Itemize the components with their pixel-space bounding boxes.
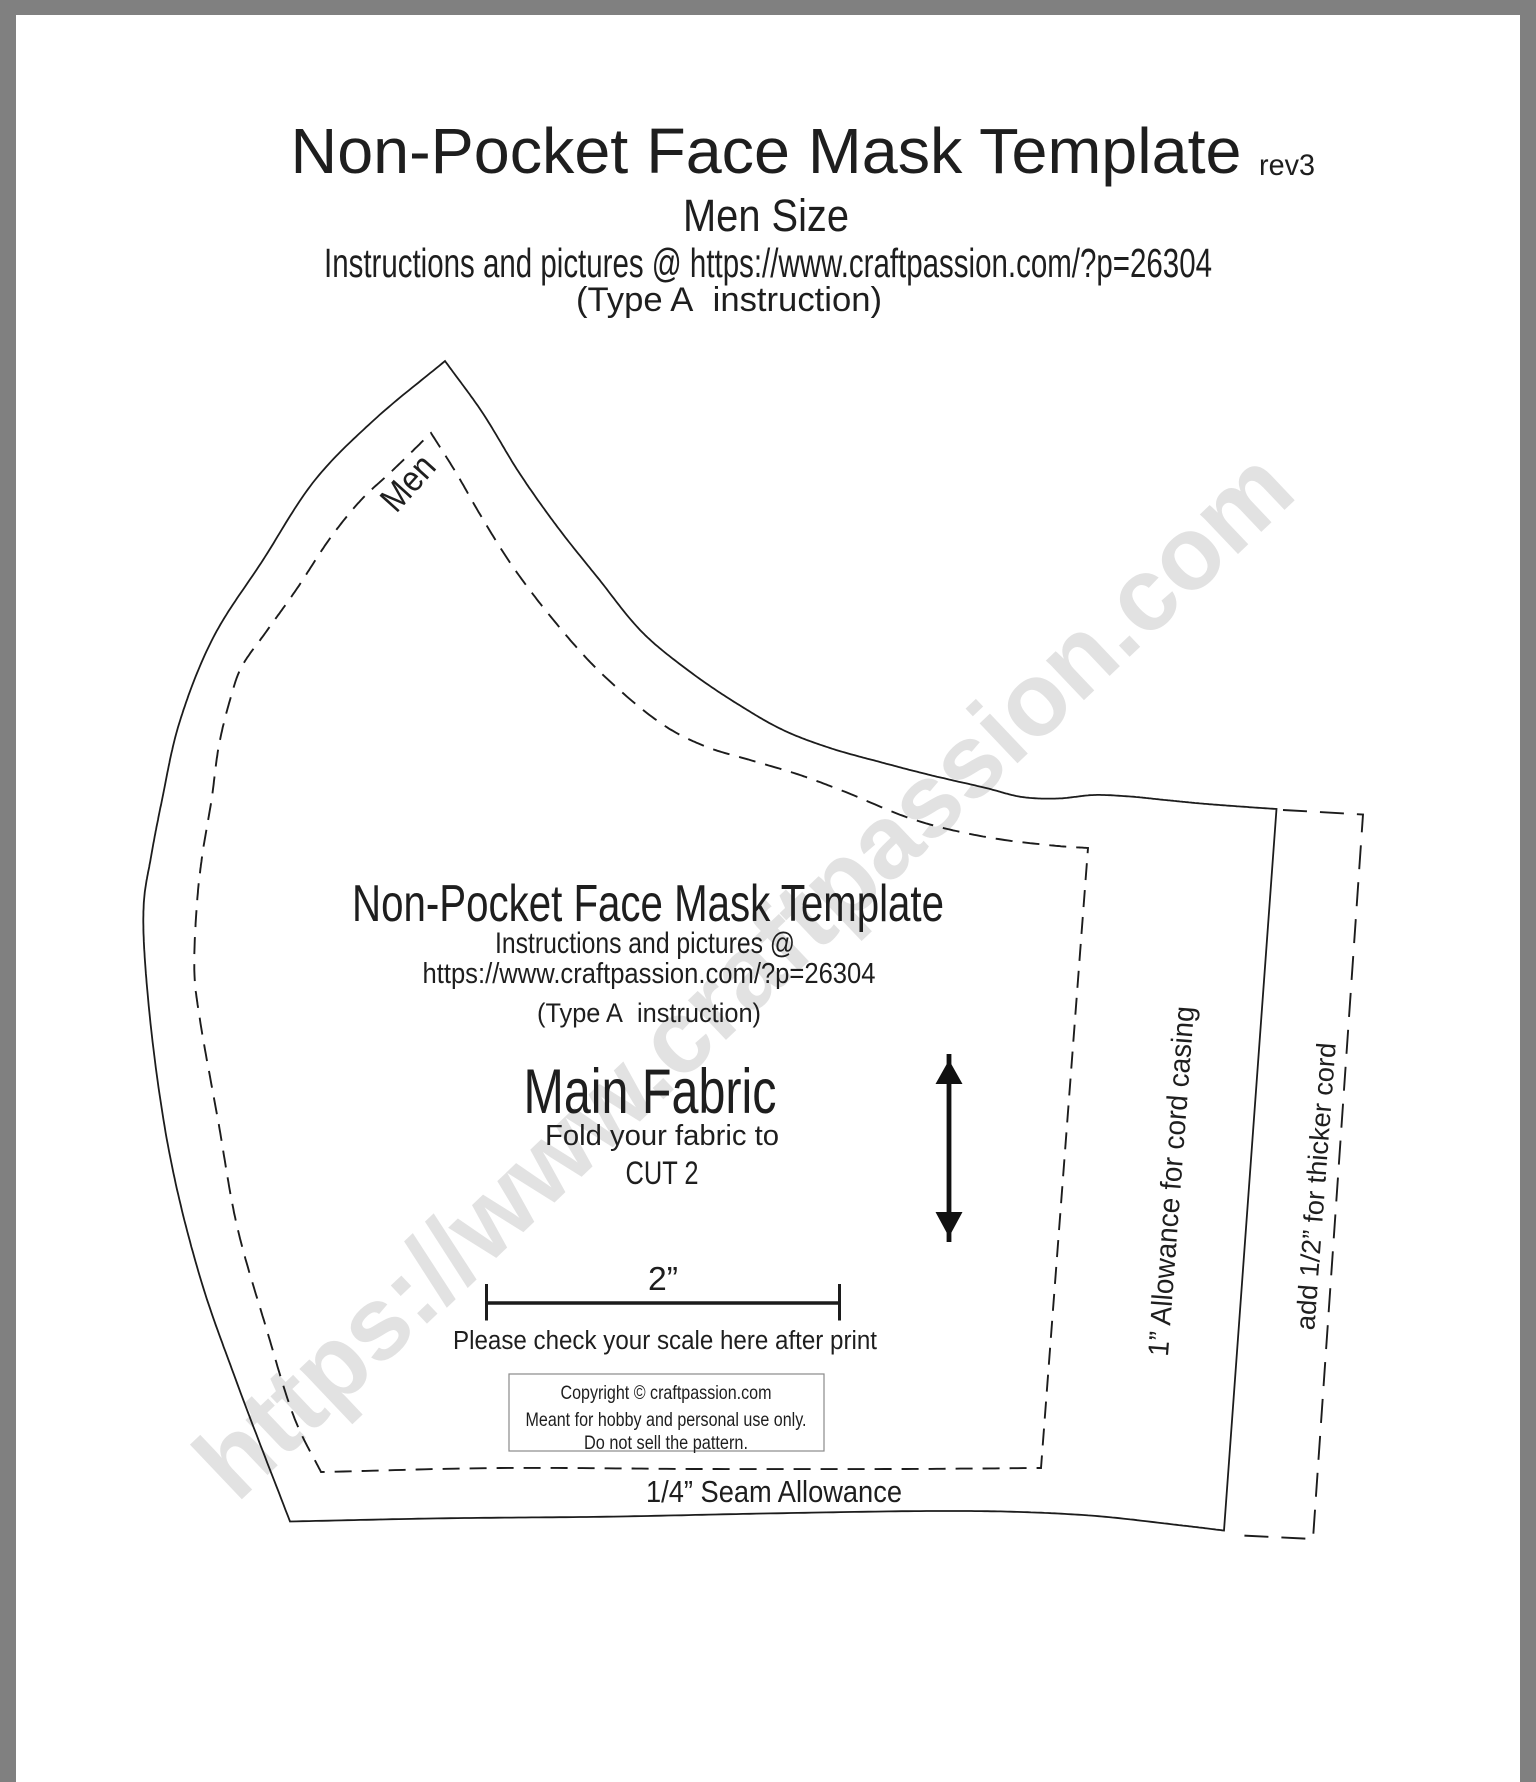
svg-text:Men Size: Men Size <box>683 190 849 241</box>
svg-text:rev3: rev3 <box>1259 149 1315 182</box>
svg-text:Meant for hobby and personal u: Meant for hobby and personal use only. <box>526 1409 807 1431</box>
svg-text:https://www.craftpassion.com/?: https://www.craftpassion.com/?p=26304 <box>423 958 876 990</box>
svg-text:(Type A instruction): (Type A instruction) <box>576 281 882 319</box>
svg-text:add 1/2” for thicker cord: add 1/2” for thicker cord <box>1290 1042 1342 1331</box>
svg-text:CUT 2: CUT 2 <box>626 1155 699 1191</box>
svg-text:Non-Pocket Face Mask Template: Non-Pocket Face Mask Template <box>352 875 944 933</box>
svg-text:Main Fabric: Main Fabric <box>524 1057 777 1127</box>
svg-text:Fold your fabric to: Fold your fabric to <box>545 1120 779 1152</box>
svg-text:1/4” Seam Allowance: 1/4” Seam Allowance <box>646 1475 902 1509</box>
svg-text:Do not sell the pattern.: Do not sell the pattern. <box>584 1432 748 1454</box>
svg-text:Non-Pocket Face Mask Template: Non-Pocket Face Mask Template <box>291 115 1242 187</box>
svg-text:Instructions and pictures @ ht: Instructions and pictures @ https://www.… <box>324 240 1212 286</box>
svg-text:(Type A instruction): (Type A instruction) <box>537 998 761 1028</box>
svg-text:Please check your scale here a: Please check your scale here after print <box>453 1327 877 1355</box>
svg-text:Instructions and pictures @: Instructions and pictures @ <box>495 927 795 960</box>
svg-text:2”: 2” <box>648 1260 678 1297</box>
svg-text:Men: Men <box>372 446 444 520</box>
svg-text:Copyright © craftpassion.com: Copyright © craftpassion.com <box>561 1382 772 1404</box>
svg-text:1” Allowance for cord casing: 1” Allowance for cord casing <box>1143 1005 1201 1357</box>
